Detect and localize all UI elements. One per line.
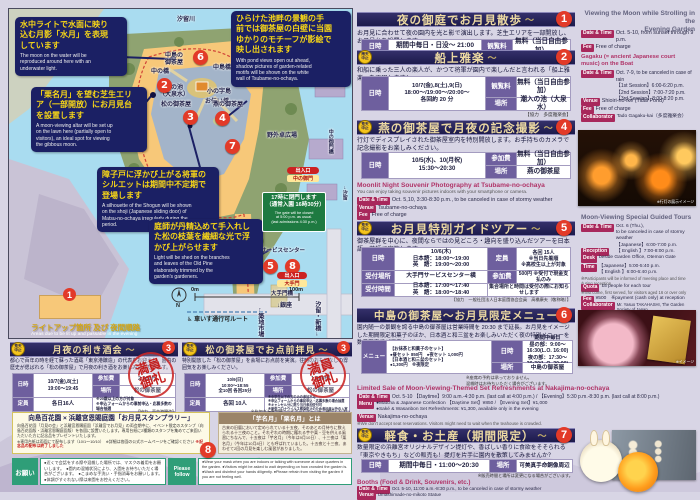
panel1-en-fee: FeeFree of charge [581, 44, 695, 52]
tea-date: 10/9(日) 10:00〜18:55 全10回 各回25分 [206, 374, 264, 397]
map-label-tsukiji-market: ←築地市場 [256, 307, 263, 337]
chip-venue: Venue [581, 98, 600, 106]
wheelchair-route-note: ♿ 車いす通行可ルート [187, 314, 248, 323]
map-marker-7: 7 [225, 139, 240, 154]
header-swirl: ～ [544, 121, 554, 134]
en-venue-text: Tsubame-no-ochaya [378, 205, 427, 212]
sake-title: 月夜の利き酒会 [52, 343, 122, 356]
chip-date: Date & Time [357, 197, 390, 205]
header-swirl: ～ [531, 222, 541, 235]
orange-lantern-photo [618, 452, 658, 492]
panel4-en-title: Moon-Viewing Special Guided Tours [581, 214, 695, 222]
panel3-date: 10/5(水)、10(月祝) 15:30〜20:30 [389, 153, 485, 178]
chip-date: Date & Time [581, 70, 614, 78]
label-date: 日時 [185, 374, 205, 397]
map-label-shiodome-dir: →汐留 [341, 185, 347, 215]
label-place: 場所 [490, 460, 516, 472]
callout-jp: 水中ライトで水面に映り 込む月影「水月」を表現 しています [20, 20, 122, 51]
panel2-place: 潮入の池（大泉水） [517, 98, 570, 110]
header-swirl: ～ [525, 13, 535, 26]
callout-jp: 障子戸に浮かび上がる将軍の シルエットは期間中不定期で 登場します [102, 170, 214, 201]
panel1-en-date: Date & TimeOct. 5-10, from sunset throug… [581, 30, 695, 44]
panel5-en-menu: Menu●Matcha & Japanese Confection 【Dayti… [357, 401, 607, 413]
request-text-en: ●Wear your mask when you are indoors or … [198, 458, 352, 485]
map-marker-3: 3 [183, 110, 198, 125]
callout-suigetsu: 水中ライトで水面に映り 込む月影「水月」を表現 しています The moon o… [15, 17, 127, 76]
callout-jp: ひらけた池畔の景観の手 前では御茶屋の白壁に当園 ゆかりのモチーフが影絵で 映し… [236, 14, 346, 56]
panel4-meet-note: 集合場所と時間は受付の際にお知らせします [488, 284, 570, 296]
gate-note-jp: 17時に閉門します （通常入園 16時30分） [266, 195, 322, 210]
panel5-table: 日時 期間中毎日 昼の部：9:00〜16:30(L.O. 16:00) 夜の部：… [361, 340, 573, 374]
panel3-table: 日時 10/5(水)、10(月祝) 15:30〜20:30 参加費 無料（当日自… [361, 152, 571, 179]
scale-100m: 100m [289, 287, 303, 293]
label-place: 場所 [486, 98, 516, 110]
callout-jp: 庭師が丹精込めて手入れし た松の枝葉を繊細な光で浮 かび上がらせます [154, 222, 258, 253]
meigetsu-info-box: 「芋名月」「栗名月」とは 古来の旧暦において定められている十五夜、そのあとの月待… [218, 412, 352, 454]
badge-line2: 中止 [361, 228, 368, 232]
label-menu: メニュー [362, 341, 386, 373]
exit-label: 出入口 [277, 272, 307, 279]
label-date: 日時 [13, 374, 33, 397]
map-label-shinbashi: 汐留・新橋→ [313, 301, 320, 339]
request-label-en: Please follow [168, 458, 196, 485]
badge-line2: 中止 [14, 349, 21, 353]
chip-date: Date & Time [581, 224, 614, 232]
panel2-table: 日時 10/7(金),8(土),9(日) 18:00〜/19:00〜/20:00… [361, 76, 571, 111]
panel5-place: 中島の御茶屋 [523, 363, 572, 373]
storm-cancel-badge: 荒天中止 [358, 428, 372, 442]
panel2-header: 船上雅楽～ [357, 50, 575, 65]
chip-date: Date & Time [581, 30, 614, 38]
panel3-place: 燕の御茶屋 [517, 166, 570, 178]
chip-menu: Menu [357, 401, 374, 409]
wagashi-photo-caption: ※イメージ [676, 359, 694, 365]
panel3-en-fee: FeeFree of charge [357, 212, 575, 220]
panel6-table: 日時 期間中毎日・11:00〜20:30 場所 可美真手命銅像周辺 [361, 459, 573, 473]
map-marker-6: 6 [193, 50, 208, 65]
stamp-rally-body: 向島百花園「月見の会」と浜離宮恩賜庭園「浜離宮でお月見」の両会期中に、イベント限… [17, 424, 205, 439]
storm-cancel-badge: 荒天中止 [358, 221, 372, 235]
chip-time: Time [581, 264, 597, 272]
gate-note-en: The gate will be closed at 5:00 p.m. as … [266, 211, 322, 225]
panel6-date: 期間中毎日・11:00〜20:30 [389, 460, 489, 472]
map-label-naka-bridge: 中の橋 [151, 69, 169, 76]
stamp-rally-title: 向島百花園 × 浜離宮恩賜庭園「お月見スタンプラリー」 [17, 415, 205, 423]
exit-name: 大手門 [277, 280, 307, 287]
callout-jp: 「栗名月」を望む芝生エリ ア（一部開放）にお月見台 を設置します [36, 90, 142, 121]
panel4-en-time: Time【Japanese】5:00-5:40 p.m. 【 English 】… [581, 264, 695, 276]
map-label-shiodome-river: 汐留川 [177, 17, 195, 24]
map-label-nakajima-ochaya: 中島の 御茶屋 [165, 53, 183, 67]
en-time-text: 【Japanese】5:00-5:40 p.m. 【 English 】6:00… [599, 264, 660, 276]
callout-shadow-pictures: ひらけた池畔の景観の手 前では御茶屋の白壁に当園 ゆかりのモチーフが影絵で 映し… [231, 11, 351, 87]
panel3-en-title: Moonlit Night Souvenir Photography at Ts… [357, 182, 575, 190]
panel6-place: 可美真手命銅像周辺 [517, 460, 572, 472]
panel3-en-sub: You can enjoy taking souvenir pictures i… [357, 190, 575, 195]
map-label-matsu-ochaya: 松の御茶屋 [161, 102, 191, 109]
callout-en: The moon on the water will be reproduced… [20, 53, 122, 72]
panel2-collab-note: 【協力 多度雅楽会】 [361, 112, 571, 118]
chip-collaborator: Collaborator [581, 302, 615, 310]
en-fee-text: Free of charge [596, 44, 631, 51]
panel4-en-desk: Deskbeside Garden Office, Otemon Gate [581, 255, 695, 263]
en-menu-text: ●Matcha & Japanese Confection 【Daytime S… [376, 401, 547, 413]
label-join-fee: 参加費 [265, 374, 291, 385]
badge-line2: 中止 [361, 57, 368, 61]
panel4-table: 日時 10/6(木) 日本語：18:00〜19:00 英 語：19:00〜20:… [361, 247, 571, 297]
panel1-number: 1 [556, 11, 572, 27]
en-date-text: Oct. 5-10 【Daytime】9:00 a.m.-4:30 p.m. (… [392, 394, 660, 401]
panel4-en-note2: ※first come, first served, for visitors … [581, 290, 695, 295]
exit-label: 出入口 [287, 167, 319, 174]
wheelchair-icon: ♿ [187, 317, 192, 323]
panel3-title: 燕の御茶屋で月夜の記念撮影 [378, 120, 541, 136]
callout-en: A moon-viewing altar will be set up on t… [36, 123, 142, 148]
storm-cancel-badge: 荒天中止 [358, 120, 372, 134]
stamp-rally-notes: ※専用台紙は両園にて配布します（10/1〜10/10） ※詳細は各園の公式ホーム… [17, 440, 205, 450]
exit-name: 中の御門 [287, 175, 319, 182]
chip-collaborator: Collaborator [581, 114, 615, 122]
panel4-date: 10/6(木) 日本語：18:00〜19:00 英 語：19:00〜20:00 [395, 248, 487, 270]
panel3-number: 4 [556, 119, 572, 135]
panel1-header: 夜の御庭でお月見散歩～ [357, 12, 575, 27]
map-marker-5: 5 [263, 259, 278, 274]
panel2-number: 2 [556, 49, 572, 65]
label-place: 場所 [486, 166, 516, 178]
rabbit-lantern-photo [580, 440, 622, 482]
panel1-title: 夜の御庭でお月見散歩 [397, 12, 522, 28]
panel6-en-venue: VenueUmashimade-no-mikoto Statue [357, 492, 607, 500]
panel4-header: お月見特別ガイドツアー～ [357, 221, 575, 236]
map-label-nakajima-bridge: 中島橋 [213, 65, 231, 72]
callout-lawn-altar: 「栗名月」を望む芝生エリ ア（一部開放）にお月見台 を設置します A moon-… [31, 87, 147, 152]
header-swirl: ～ [537, 429, 547, 442]
lantern-photo-caption: ※行灯の展示イメージ [657, 199, 694, 205]
map-label-ginza: ↓銀座 [277, 303, 292, 310]
meigetsu-title: 「芋名月」「栗名月」とは [219, 413, 351, 424]
panel5-number: 6 [556, 307, 572, 323]
en-date-text: Oct. 5,10, 3:30-8:30 p.m., to be cancele… [392, 197, 553, 204]
panel4-number: 5 [556, 220, 572, 236]
rain-cancel-badge: 雨天中止 [358, 50, 372, 64]
scale-0m: 0m [191, 287, 199, 293]
request-label-jp: お願い [12, 458, 38, 485]
chip-venue: Venue [357, 492, 376, 500]
label-reception-place: 受付場所 [362, 271, 394, 283]
label-date: 日時 [362, 460, 388, 472]
panel4-quota: 各回 15人 ※当日先着順 ※高校生以上が対象 [517, 248, 570, 270]
en-venue-text: Nakajima-no-ochaya [378, 414, 427, 421]
label-reception-time: 受付時間 [362, 284, 394, 296]
storm-cancel-badge: 荒天中止 [11, 342, 25, 356]
meigetsu-body: 古来の旧暦において定められている十五夜、そのあとの月待ちに数えられる十三夜のこと… [219, 424, 351, 452]
en-collab-text: Tado Gagaku-kai（多度雅楽会） [617, 114, 687, 120]
compass-n: N [176, 303, 180, 309]
panel2-title: 船上雅楽 [434, 50, 484, 66]
panel4-reception-time: 日本語：17:00〜17:40 英 語：18:00〜18:40 [395, 284, 487, 296]
exit-otemon: 出入口 大手門 [277, 272, 307, 287]
header-swirl: ～ [487, 51, 497, 64]
storm-cancel-badge: 荒天中止 [183, 342, 197, 356]
header-swirl: ～ [126, 343, 136, 356]
map-label-nakanogomon-bridge: 中の御門橋 [327, 129, 333, 179]
legend-number-1: 1 [63, 288, 76, 301]
lantern-display-photo: ※行灯の展示イメージ [578, 130, 696, 206]
gate-closing-note: 17時に閉門します （通常入園 16時30分） The gate will be… [262, 192, 326, 232]
panel3-en-date: Date & TimeOct. 5,10, 3:30-8:30 p.m., to… [357, 197, 575, 205]
label-place: 場所 [492, 363, 522, 373]
label-join-fee: 参加費 [486, 153, 516, 165]
badge-line2: 中止 [361, 127, 368, 131]
label-date: 日時 [362, 153, 388, 178]
panel2-en-title: Gagaku (= ancient Japanese court music) … [581, 54, 695, 68]
rabbit-ear [602, 430, 610, 446]
rabbit-ear [590, 430, 598, 446]
map-label-konoji-island: 小の字島 [207, 89, 231, 96]
label-fee: 観覧料 [486, 77, 516, 97]
chip-fee: Fee [581, 106, 594, 114]
stamp-rally-number: 8 [200, 442, 216, 458]
map-label-tsubame-ochaya: 燕の御茶屋 [213, 102, 243, 109]
garden-map: 汐留川 中の橋 中島の 御茶屋 中島橋 潮入の池 （大泉水） 小の字島 お伝い橋… [8, 8, 353, 339]
label-join-fee: 参加費 [488, 271, 516, 283]
en-fee-text: Free of charge [596, 106, 631, 113]
panel5-en-title: Limited Sale of Moon-Viewing-Themed Set … [357, 385, 687, 393]
chip-desk: Desk [581, 255, 597, 263]
panel2-en-fee: FeeFree of charge [581, 106, 695, 114]
badge-line2: 中止 [361, 435, 368, 439]
panel4-fee: 500円 ※受付で現金支払のみ [517, 271, 570, 283]
label-date: 日時 [362, 77, 388, 110]
panel4-collab-note: 【協力 一般社団法人日本庭園協会会員 高橋康夫（敬称略）】 [361, 297, 571, 303]
label-date: 日時 [492, 341, 522, 362]
gold-plate [647, 316, 691, 365]
label-date: 日時 [362, 248, 394, 270]
callout-en: Light will be shed on the branches and l… [154, 255, 258, 280]
chip-fee: Fee [581, 44, 594, 52]
panel2-fee: 無料（当日自由参加） [517, 77, 570, 97]
panel2-en-venue: VenueShioiri-no-ike (Tidal Pond) [581, 98, 695, 106]
tea-title: 松の御茶屋でお点前拝見 [205, 343, 315, 356]
panel6-header: 軽食・お土産（期間限定）～ [357, 428, 575, 443]
tea-number: 3 [337, 341, 350, 354]
panel4-reception-place: 大手門サービスセンター横 [395, 271, 487, 283]
callout-old-pine-light: 庭師が丹精込めて手入れし た松の枝葉を繊細な光で浮 かび上がらせます Light… [149, 219, 263, 284]
en-date-text: Oct. 5-10, from sunset through 9 p.m. [616, 30, 695, 44]
panel2-en-collab: CollaboratorTado Gagaku-kai（多度雅楽会） [581, 114, 695, 122]
label-place: 場所 [93, 386, 119, 397]
en-venue-text: Shioiri-no-ike (Tidal Pond) [602, 98, 664, 105]
map-marker-4: 4 [215, 111, 230, 126]
en-fee-text: Free of charge [372, 212, 407, 219]
callout-en: With pond views open out ahead, shadow p… [236, 58, 346, 83]
wagashi-set-photo: ※イメージ [578, 310, 696, 366]
sake-date: 10/7(金),8(土) 19:00〜19:45 [34, 374, 92, 397]
panel6-title: 軽食・お土産（期間限定） [384, 428, 534, 444]
panel5-en-note: ※We don't accept seat reservations. Visi… [357, 421, 607, 427]
legend-title-en: Areas due to be lit up and passable in t… [31, 332, 191, 337]
en-desk-text: beside Garden Office, Otemon Gate [599, 255, 676, 261]
wheelchair-text: 車いす通行可ルート [194, 317, 248, 323]
chip-fee: Fee [357, 212, 370, 220]
panel5-date: 期間中毎日 昼の部：9:00〜16:30(L.O. 16:00) 夜の部：17:… [523, 341, 572, 362]
en-venue-text: Umashimade-no-mikoto Statue [378, 492, 441, 498]
map-label-service-center: サービスセンター [261, 248, 305, 254]
moon-viewing-flyer: { "misc":{"stamp1":"満員","stamp2":"御礼","r… [0, 0, 700, 492]
request-text-jp: ●近くで会話をする際や混雑した場所では、マスクの着用をお願いします。 ●園内の混… [40, 458, 166, 485]
panel5-title: 中島の御茶屋〜お月見限定メニュー [374, 308, 558, 323]
panel2-date: 10/7(金),8(土),9(日) 18:00〜/19:00〜/20:00〜 各… [389, 77, 485, 110]
map-label-yagai-plaza: 野外卓広場 [267, 133, 297, 140]
panel3-header: 燕の御茶屋で月夜の記念撮影～ [357, 120, 575, 135]
label-join-fee: 参加費 [93, 374, 119, 385]
panel5-menu: 【お抹茶と和菓子のセット】 ●昼セット 850円 ●夜セット 1,000円 【日… [387, 341, 491, 373]
panel5-header: 中島の御茶屋〜お月見限定メニュー [357, 308, 575, 323]
panel6-number: 7 [556, 427, 572, 443]
badge-line2: 中止 [186, 349, 193, 353]
panel3-fee: 無料（当日自由参加） [517, 153, 570, 165]
stamp-rally-box: 向島百花園 × 浜離宮恩賜庭園「お月見スタンプラリー」 向島百花園「月見の会」と… [12, 412, 210, 454]
map-marker-2: 2 [157, 78, 172, 93]
label-quota: 定員 [488, 248, 516, 270]
panel4-title: お月見特別ガイドツアー [391, 221, 529, 237]
exit-nakanogomon: 出入口 中の御門 [287, 167, 319, 182]
sake-number: 3 [162, 341, 175, 354]
